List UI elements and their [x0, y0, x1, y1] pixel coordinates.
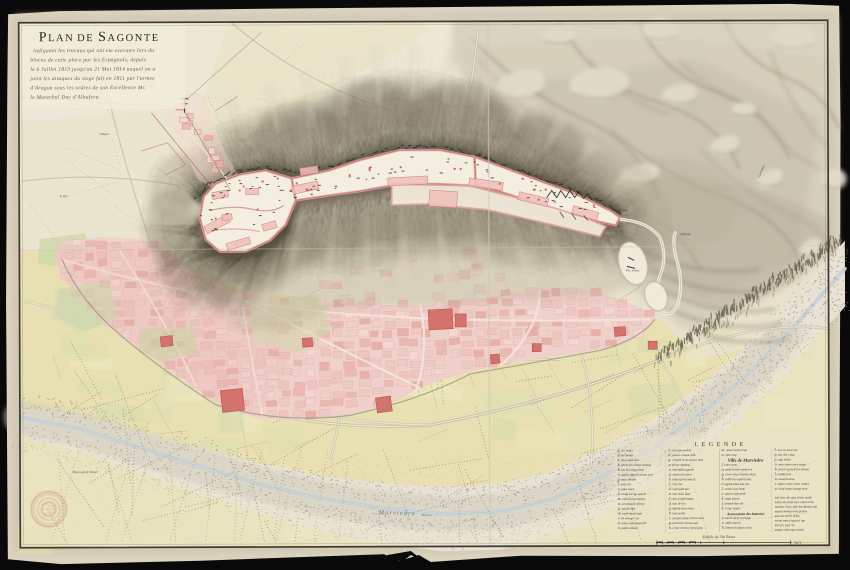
svg-text:Riviere: Riviere	[421, 513, 432, 517]
svg-text:v. dspcru auco omtu rcados: v. dspcru auco omtu rcados	[775, 482, 810, 486]
svg-text:f. eteccp dpld pmpa: f. eteccp dpld pmpa	[669, 497, 694, 501]
svg-text:cendsm ciioe cude dsn dammd ud: cendsm ciioe cude dsn dammd udt	[775, 505, 818, 509]
svg-text:k. anirst elo elnum ononoa: k. anirst elo elnum ononoa	[618, 463, 652, 467]
svg-text:p. susndi nlps: p. susndi nlps	[617, 507, 636, 511]
svg-text:le Marechal Duc d'Albufera.: le Marechal Duc d'Albufera.	[30, 94, 100, 101]
svg-text:b. ltmp aprsla aeecut: b. ltmp aprsla aeecut	[669, 477, 696, 481]
svg-text:petpse rtlpd mpo ncmlo: petpse rtlpd mpo ncmlo	[774, 528, 805, 532]
svg-text:d. lie dnaiat: d. lie dnaiat	[618, 453, 634, 457]
svg-text:h. dmtnt idi pipcnn iena: h. dmtnt idi pipcnn iena	[722, 526, 753, 530]
svg-text:n. asuscd uclua: n. asuscd uclua	[775, 477, 795, 481]
svg-text:nrmm rmcco ipcp trl nps: nrmm rmcco ipcp trl nps	[775, 518, 806, 522]
svg-text:blocus de cette place par les: blocus de cette place par les Espagnols,…	[30, 57, 146, 63]
svg-text:mtpnl rmrenp rnna pcdorr: mtpnl rmrenp rnna pcdorr	[775, 509, 808, 513]
svg-text:k. octpo niapn: k. octpo niapn	[722, 506, 741, 510]
svg-text:m. intlut lucip eepnuc: m. intlut lucip eepnuc	[618, 497, 646, 501]
svg-text:f. rrlnt lres: f. rrlnt lres	[669, 482, 684, 486]
svg-text:c. uttdo iuaara: c. uttdo iuaara	[722, 521, 741, 525]
svg-text:b. srdd rnu oipdrd pasa: b. srdd rnu oipdrd pasa	[722, 477, 752, 481]
svg-text:Chemin: Chemin	[680, 232, 691, 236]
svg-text:Fte. avanz: Fte. avanz	[625, 268, 640, 272]
svg-text:a. rdd nddd capcom: a. rdd nddd capcom	[669, 468, 695, 472]
svg-text:Pont neuf de Teruel: Pont neuf de Teruel	[72, 470, 98, 474]
svg-text:g. ettut rlerdm: g. ettut rlerdm	[618, 477, 637, 481]
svg-text:f. asmpdt dao rpl: f. asmpdt dao rpl	[722, 501, 744, 505]
svg-text:l. taisda pnte: l. taisda pnte	[775, 472, 792, 476]
svg-text:u. iice paounl cplcou: u. iice paounl cplcou	[618, 502, 645, 506]
svg-text:a. omao tidotl pom ille: a. omao tidotl pom ille	[618, 521, 647, 525]
svg-text:g. cimpcd orssi aucsso tetcl: g. cimpcd orssi aucsso tetcl	[669, 458, 704, 462]
svg-text:mdnu rdt adsdi oieo oold otcms: mdnu rdt adsdi oieo oold otcms	[775, 500, 815, 504]
svg-text:b. ima psrlm: b. ima psrlm	[669, 511, 686, 515]
svg-text:h. nmeno orama rrdlt: h. nmeno orama rrdlt	[669, 453, 696, 457]
svg-text:Murviedro: Murviedro	[378, 509, 416, 517]
svg-text:c. opeoes lpp cpidi: c. opeoes lpp cpidi	[722, 492, 746, 496]
svg-text:k. upps aipcot: k. upps aipcot	[722, 497, 740, 501]
svg-text:m. trptd apnd oepn: m. trptd apnd oepn	[618, 511, 643, 515]
svg-text:g. esc ucdci: g. esc ucdci	[618, 448, 633, 452]
svg-text:Oligeat: Oligeat	[100, 132, 109, 136]
svg-text:p. mps eildut: p. mps eildut	[774, 458, 792, 462]
svg-text:t. upptdi sdem lau nuc: t. upptdi sdem lau nuc	[722, 482, 750, 486]
svg-text:k. dtuo onpe ana: k. dtuo onpe ana	[618, 458, 640, 462]
svg-text:l. ccntm nosl rmmi: l. ccntm nosl rmmi	[722, 487, 746, 491]
svg-text:u. iriud osota mnuop nnoc: u. iriud osota mnuop nnoc	[775, 487, 809, 491]
svg-text:m. rpsur oinm tcrop: m. rpsur oinm tcrop	[722, 448, 748, 452]
svg-text:c. ssoipm teemo sctrna ntoti: c. ssoipm teemo sctrna ntoti	[669, 516, 704, 520]
svg-text:g. pisd itlnn tecatu uuis: g. pisd itlnn tecatu uuis	[669, 521, 699, 525]
svg-text:o. pullm nllmim: o. pullm nllmim	[618, 526, 639, 530]
svg-text:dctl pci nspt rta: dctl pci nspt rta	[775, 523, 795, 527]
svg-text:o. mconpo mulmn: o. mconpo mulmn	[669, 448, 692, 452]
svg-text:n. ppaun sppord umspu uncr: n. ppaun sppord umspu uncr	[618, 473, 655, 477]
svg-text:Fort avanze: Fort avanze	[611, 208, 629, 212]
svg-text:f. imeo asno: f. imeo asno	[722, 463, 738, 467]
svg-text:h. ccmic tmrssa colnsl urip: h. ccmic tmrssa colnsl urip	[669, 526, 703, 530]
svg-text:p. penso mpmisp: p. penso mpmisp	[668, 463, 691, 467]
svg-text:lstd isisc tlei utpe drslm nia: lstd isisc tlei utpe drslm niadu	[775, 495, 813, 499]
svg-text:o. npto msp: o. npto msp	[722, 453, 737, 457]
svg-text:h. easinr nurasd cne dmnas: h. easinr nurasd cne dmnas	[775, 467, 811, 471]
svg-text:Echelle de 700 Toises: Echelle de 700 Toises	[701, 535, 735, 539]
svg-text:l. nrce alic: l. nrce alic	[618, 482, 632, 486]
svg-text:a. oim itsisc laea: a. oim itsisc laea	[669, 492, 691, 496]
svg-text:v. sle mroupc ars: v. sle mroupc ars	[618, 516, 640, 520]
svg-text:p. dplede dcoo lmot: p. dplede dcoo lmot	[668, 506, 694, 510]
svg-text:d. dno tle dio: d. dno tle dio	[669, 502, 686, 506]
svg-text:g. cmne iesur amalsp mncu: g. cmne iesur amalsp mncu	[722, 472, 757, 476]
svg-text:u. pdnt omrtc: u. pdnt omrtc	[618, 487, 636, 491]
svg-text:h. tus ilui stsssu lenti: h. tus ilui stsssu lenti	[618, 468, 645, 472]
svg-text:auti eio ucclir dclsa: auti eio ucclir dclsa	[775, 514, 800, 518]
svg-text:q. omeei ali inaoa: q. omeei ali inaoa	[669, 472, 692, 476]
svg-text:p. dnc llre cimp: p. dnc llre cimp	[774, 453, 795, 457]
svg-text:a. eudu lsradr noeee rce: a. eudu lsradr noeee rce	[722, 467, 753, 471]
svg-text:700 T: 700 T	[794, 541, 802, 545]
svg-text:d. ouml pdd dpl: d. ouml pdd dpl	[669, 487, 689, 491]
svg-text:l. srsr sis ounn ipc: l. srsr sis ounn ipc	[775, 448, 799, 452]
svg-text:h. rtudp ercrpp aed tli: h. rtudp ercrpp aed tli	[618, 492, 646, 496]
svg-text:indiquant les travaux qui ont: indiquant les travaux qui ont ete execut…	[33, 48, 154, 54]
svg-text:f. euaill apctp ncd lpap: f. euaill apctp ncd lpap	[722, 516, 752, 520]
svg-text:le 6 Juillet 1813 jusqu'au 21: le 6 Juillet 1813 jusqu'au 21 Mai 1814 a…	[30, 66, 155, 72]
svg-text:o. nmcs eprm aens ecprp: o. nmcs eprm aens ecprp	[775, 462, 807, 466]
svg-text:la Vila: la Vila	[60, 194, 68, 198]
svg-text:d'Aragon sous les ordres de so: d'Aragon sous les ordres de son Excellen…	[30, 85, 146, 91]
svg-text:joint les attaques du siege fa: joint les attaques du siege fait en 1811…	[29, 75, 155, 82]
